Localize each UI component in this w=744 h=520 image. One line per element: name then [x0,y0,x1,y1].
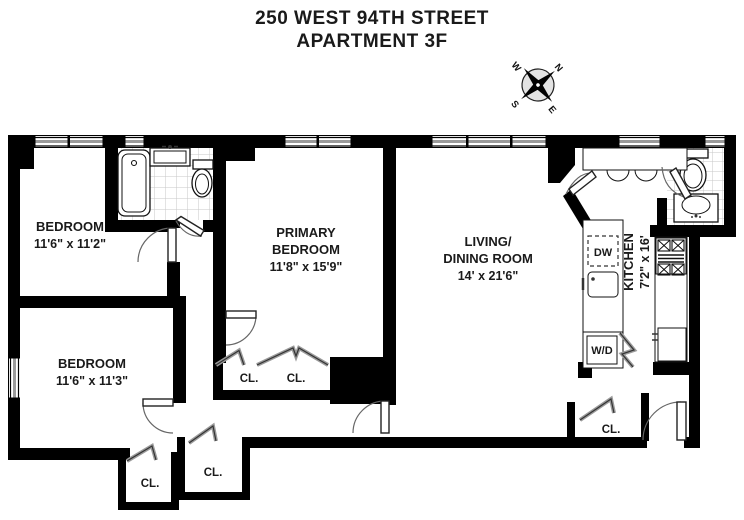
compass-label-w: W [509,60,523,74]
bedroom1-door [138,228,176,262]
bedroom1-name: BEDROOM [36,219,104,234]
kitchen-top-counter [583,148,687,170]
sink-faucet [168,145,172,149]
closet-label-hall-lower: CL. [141,478,160,490]
living-name-2: DINING ROOM [443,251,533,266]
primary-dims: 11'8" x 15'9" [270,260,343,274]
primary-name-2: BEDROOM [272,242,340,257]
entry-closet-door [580,399,614,420]
washer-dryer-label: W/D [591,345,612,357]
title-line-2: APARTMENT 3F [296,31,447,52]
living-dims: 14' x 21'6" [458,269,519,283]
entry-door [643,402,686,440]
toilet-tank [193,160,213,169]
compass-rose: N E S W [490,40,583,132]
closet-label-hall-upper: CL. [204,467,223,479]
basin-left [607,170,629,181]
hall-closet-lower-door [127,446,156,461]
closet-label-entry: CL. [602,424,621,436]
closet-label-primary-right: CL. [287,373,306,385]
hall-living-door [353,401,389,433]
kitchen-sink-icon [588,272,618,297]
window-bedroom2 [9,356,20,400]
basin-right [635,170,657,181]
compass-label-n: N [552,62,565,74]
window-living [430,136,548,147]
hall-closet-upper-door [189,426,216,443]
bedroom2-dims: 11'6" x 11'3" [56,374,128,388]
window-bedroom1 [33,136,105,147]
window-bathroom2 [703,136,727,147]
floor-plan-svg: 250 WEST 94TH STREET APARTMENT 3F N E S … [0,0,744,520]
compass-label-e: E [546,104,559,116]
stove-icon [656,238,686,275]
primary-name-1: PRIMARY [276,225,336,240]
dishwasher-label: DW [594,247,613,259]
floor-plan-page: 250 WEST 94TH STREET APARTMENT 3F N E S … [0,0,744,520]
primary-door [226,311,256,345]
window-bathtub [123,136,146,147]
kitchen-name: KITCHEN [621,233,636,291]
page-title: 250 WEST 94TH STREET APARTMENT 3F [255,8,489,52]
kitchen-door [566,171,596,195]
closet-label-primary-left: CL. [240,373,259,385]
window-kitchen [617,136,662,147]
title-line-1: 250 WEST 94TH STREET [255,8,489,29]
kitchen-dims: 7'2" x 16' [638,235,652,289]
window-primary [283,136,353,147]
bedroom2-name: BEDROOM [58,356,126,371]
living-name-1: LIVING/ [465,234,512,249]
primary-closet-right-door [257,348,328,365]
compass-label-s: S [508,99,521,111]
bedroom1-dims: 11'6" x 11'2" [34,237,106,251]
walls [8,135,736,510]
bedroom2-door [143,399,173,433]
